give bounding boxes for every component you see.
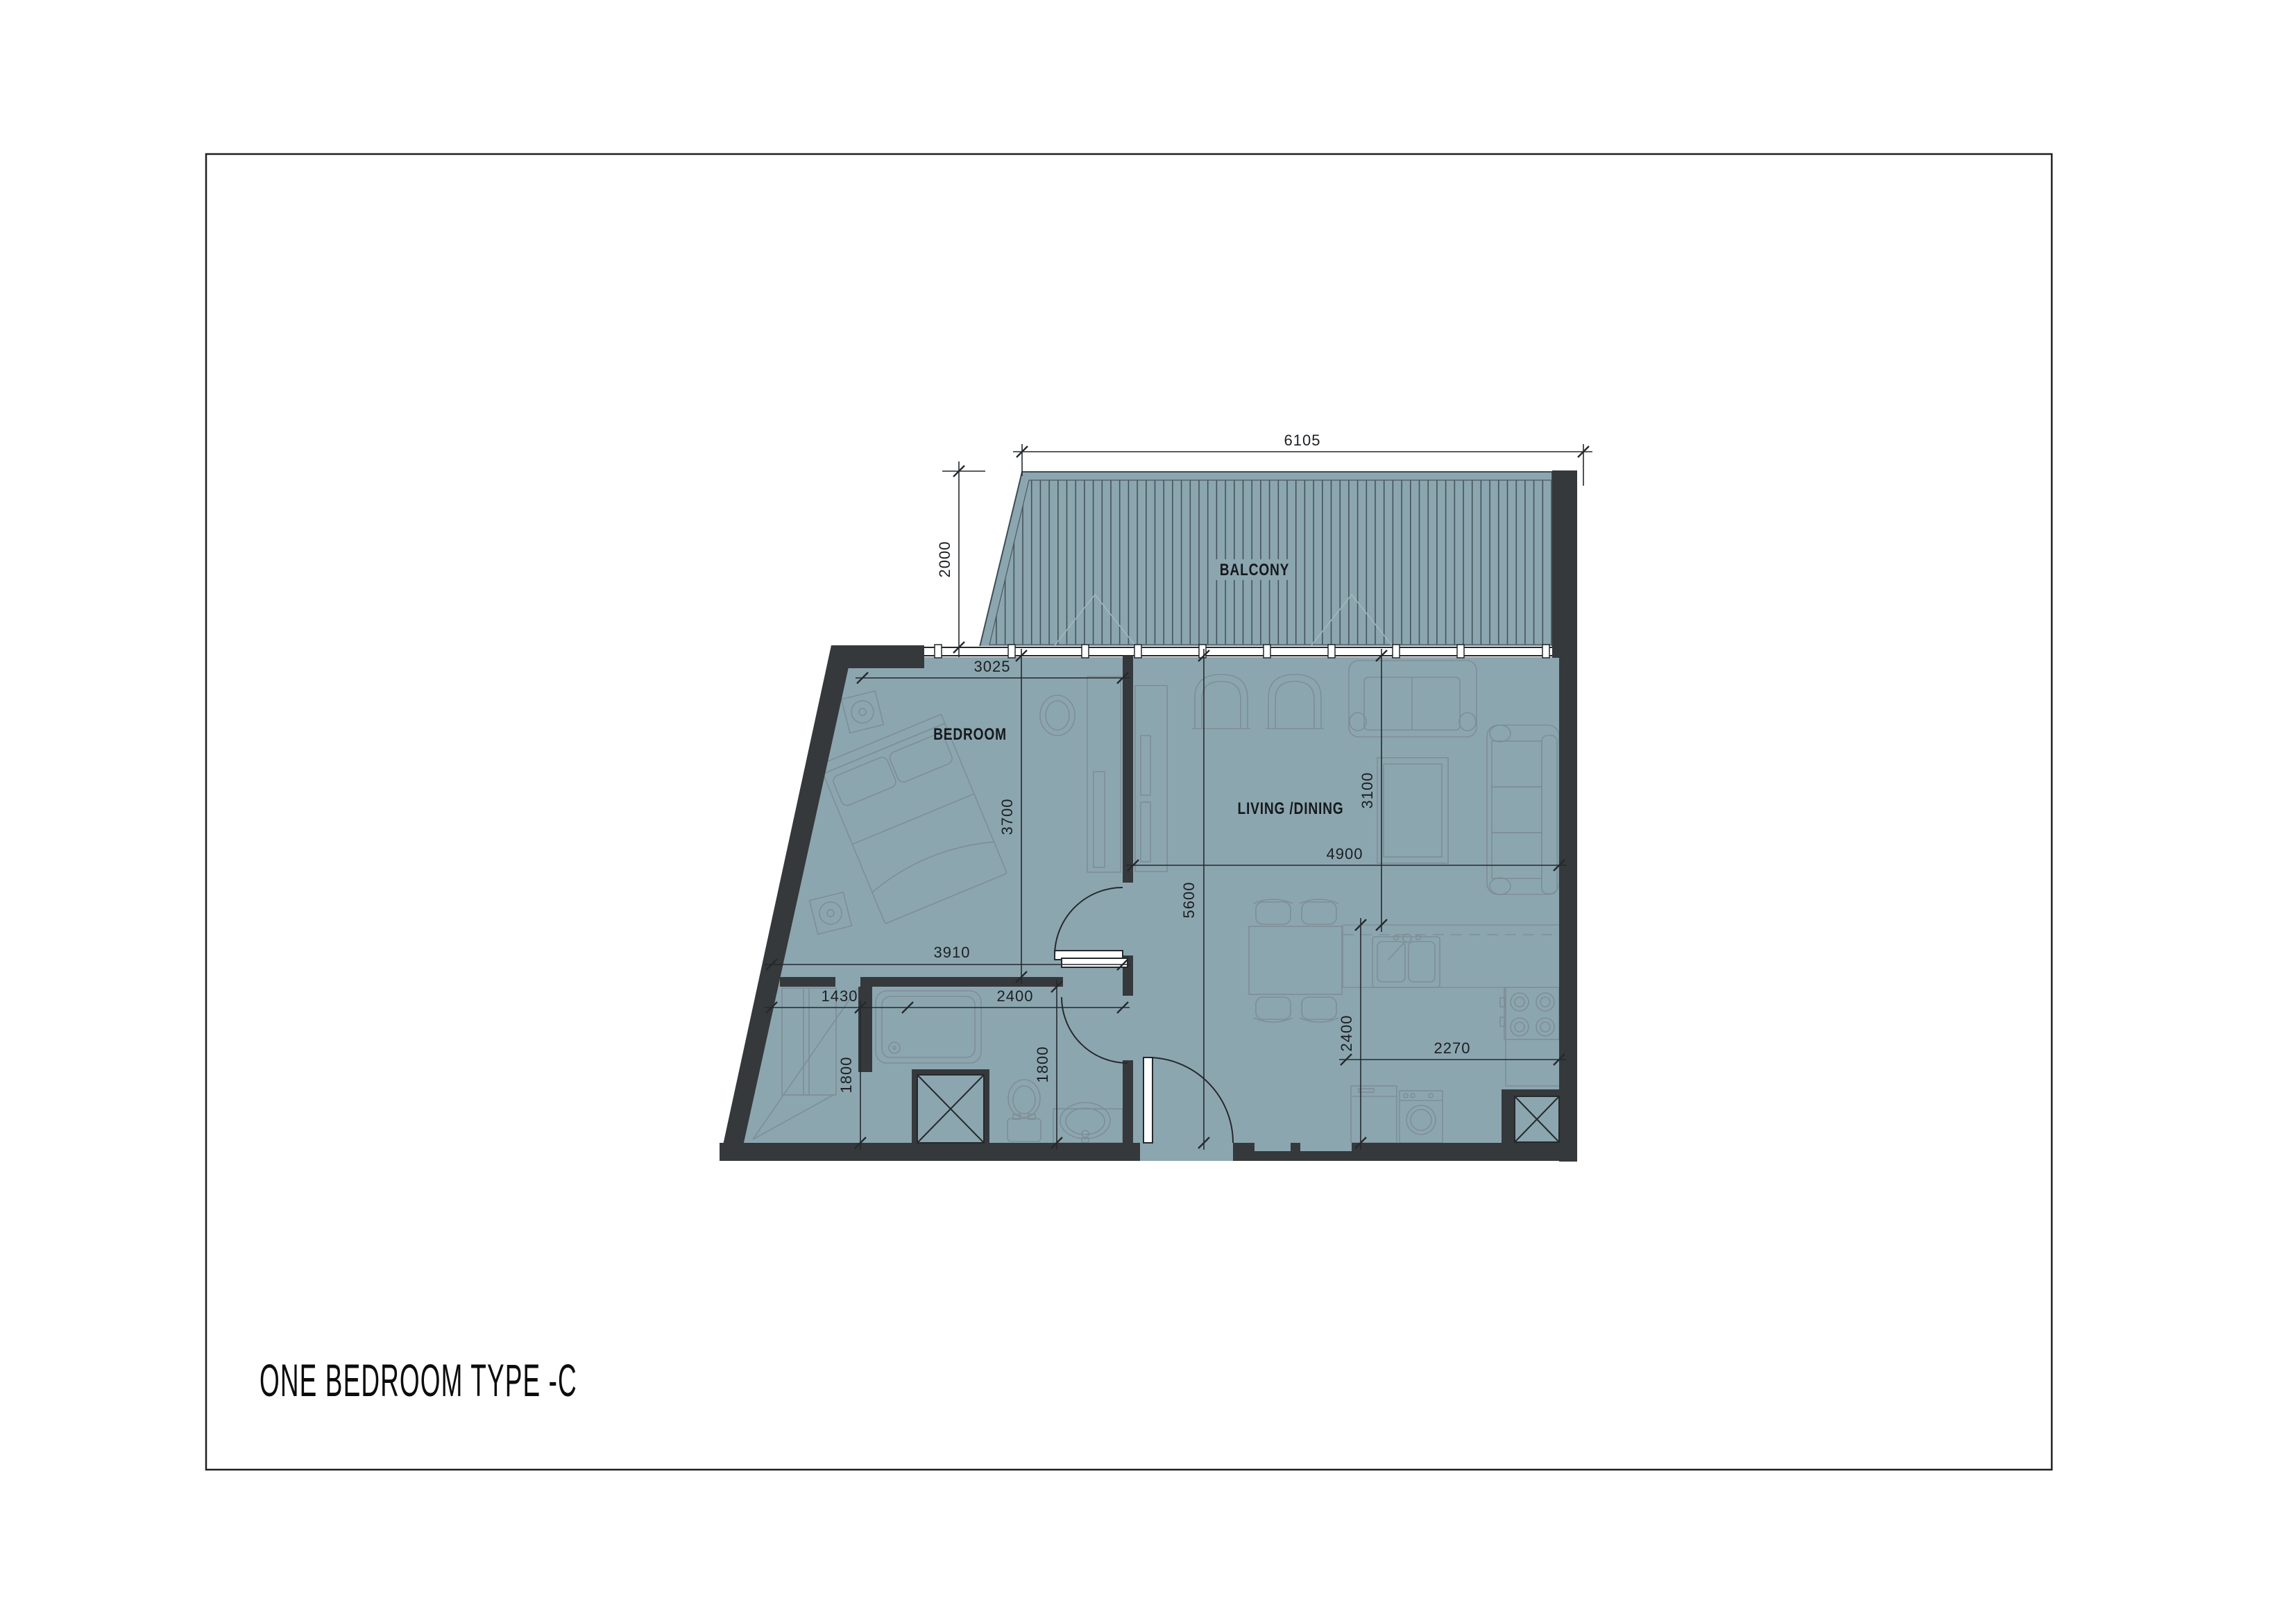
dim-bath-width: 2400 [997, 987, 1034, 1005]
dim-closet-width: 1430 [822, 987, 858, 1005]
wall-bath-top [860, 977, 1063, 987]
dim-bedroom-width-top: 3025 [974, 658, 1011, 675]
wall-right [1559, 656, 1577, 1162]
threshold-notches [1255, 1143, 1352, 1151]
dim-bedroom-width-bottom: 3910 [934, 944, 971, 961]
wall-bath-right [1123, 1060, 1133, 1143]
entry-threshold-floor [1140, 1143, 1233, 1161]
dim-balcony-width: 6105 [1284, 432, 1321, 449]
window-band [923, 645, 1552, 658]
plan-title: ONE BEDROOM TYPE -C [260, 1356, 577, 1407]
wall-right-balcony [1552, 470, 1577, 658]
wall-closet-top [780, 977, 835, 987]
wall-bottom-left [720, 1143, 1140, 1161]
wall-bedroom-partition [1123, 656, 1133, 883]
drawing-canvas: 6105 2000 3025 3700 3910 5600 4900 3100 … [0, 0, 2296, 1623]
dim-living-depth: 3100 [1359, 772, 1376, 809]
balcony-label: BALCONY [1220, 560, 1289, 579]
dim-bedroom-depth: 3700 [998, 799, 1016, 835]
dim-bath-depth: 1800 [1034, 1046, 1051, 1083]
dim-kitchen-depth: 2400 [1338, 1015, 1355, 1052]
duct-shaft-bath [917, 1075, 984, 1143]
bedroom-label: BEDROOM [933, 724, 1007, 744]
duct-shaft-kitchen [1515, 1096, 1559, 1142]
dim-living-width: 4900 [1327, 845, 1363, 863]
dim-closet-depth: 1800 [837, 1057, 855, 1094]
wall-bedroom-top [831, 645, 924, 668]
living-dining-label: LIVING /DINING [1238, 799, 1344, 818]
floor-plan-svg: 6105 2000 3025 3700 3910 5600 4900 3100 … [0, 0, 2296, 1623]
dim-hall-depth: 5600 [1180, 882, 1198, 919]
dim-balcony-depth: 2000 [936, 541, 953, 578]
dim-kitchen-width: 2270 [1434, 1039, 1471, 1057]
